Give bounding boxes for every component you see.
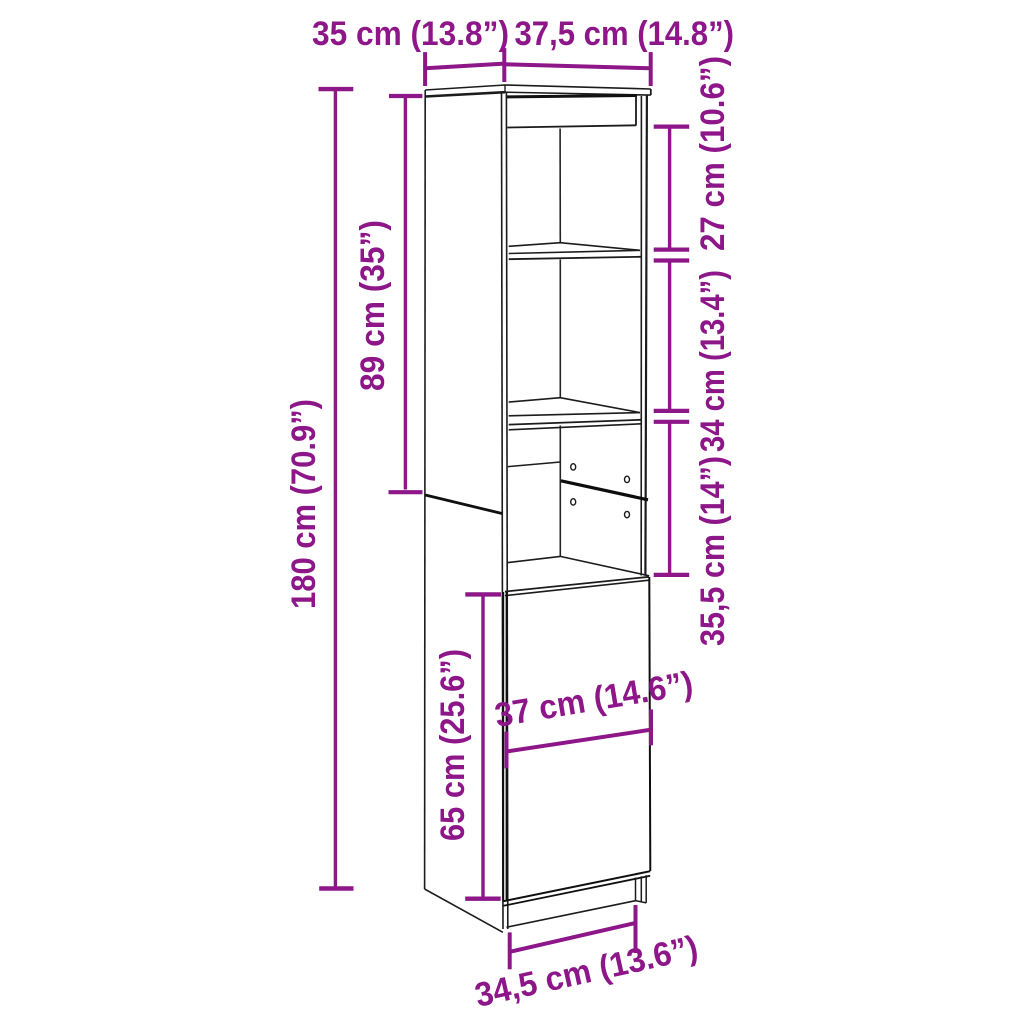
- svg-text:37,5 cm (14.8”): 37,5 cm (14.8”): [515, 15, 735, 53]
- svg-text:89 cm (35”): 89 cm (35”): [354, 220, 392, 391]
- svg-text:65 cm (25.6”): 65 cm (25.6”): [434, 649, 472, 841]
- svg-text:27 cm (10.6”): 27 cm (10.6”): [694, 56, 732, 251]
- svg-text:34 cm (13.4”): 34 cm (13.4”): [694, 270, 732, 452]
- svg-text:35 cm (13.8”): 35 cm (13.8”): [312, 15, 509, 53]
- svg-text:180 cm (70.9”): 180 cm (70.9”): [285, 399, 323, 609]
- svg-text:35,5 cm (14”): 35,5 cm (14”): [694, 456, 732, 646]
